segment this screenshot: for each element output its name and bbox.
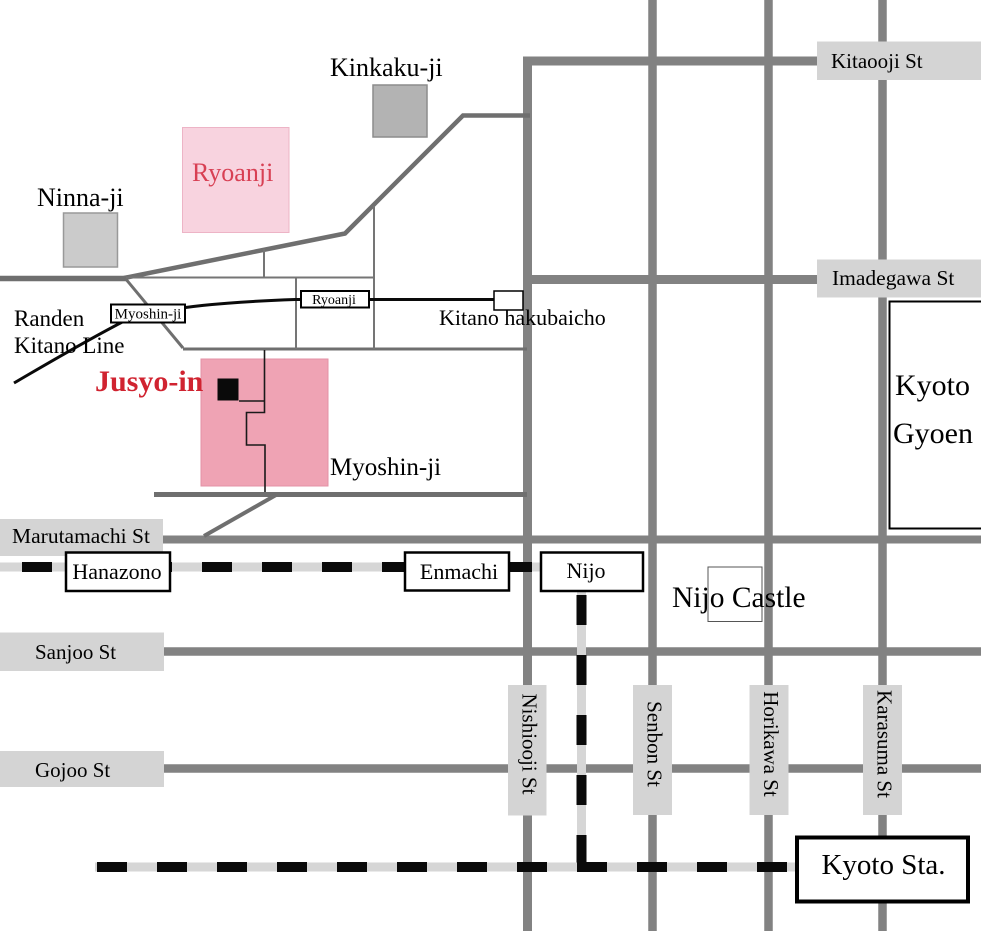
svg-text:Ryoanji: Ryoanji [192,158,273,187]
svg-text:Karasuma St: Karasuma St [873,690,897,798]
svg-text:Nijo: Nijo [566,558,605,583]
svg-text:Kitano Line: Kitano Line [14,333,125,358]
svg-text:Gojoo St: Gojoo St [35,758,110,782]
svg-text:Kitaooji St: Kitaooji St [831,49,923,73]
svg-text:Sanjoo St: Sanjoo St [35,640,116,664]
svg-text:Randen: Randen [14,306,85,331]
svg-text:Kitano hakubaicho: Kitano hakubaicho [439,305,606,330]
svg-text:Myoshin-ji: Myoshin-ji [115,307,182,323]
svg-text:Ninna-ji: Ninna-ji [37,183,124,212]
svg-text:Enmachi: Enmachi [420,559,498,584]
svg-text:Senbon St: Senbon St [643,701,667,787]
svg-text:Ryoanji: Ryoanji [312,293,356,308]
svg-text:Marutamachi St: Marutamachi St [12,524,150,548]
svg-text:Hanazono: Hanazono [72,559,161,584]
svg-text:Nishiooji St: Nishiooji St [518,694,542,795]
svg-text:Jusyo-in: Jusyo-in [95,365,204,398]
svg-text:Myoshin-ji: Myoshin-ji [330,454,441,481]
svg-text:Horikawa St: Horikawa St [759,691,783,797]
svg-text:Kyoto Sta.: Kyoto Sta. [821,849,945,881]
svg-text:Kyoto: Kyoto [895,369,970,402]
svg-text:Kinkaku-ji: Kinkaku-ji [330,53,443,82]
svg-text:Imadegawa St: Imadegawa St [832,266,954,290]
svg-text:Nijo Castle: Nijo Castle [672,582,806,614]
svg-text:Gyoen: Gyoen [893,417,973,450]
